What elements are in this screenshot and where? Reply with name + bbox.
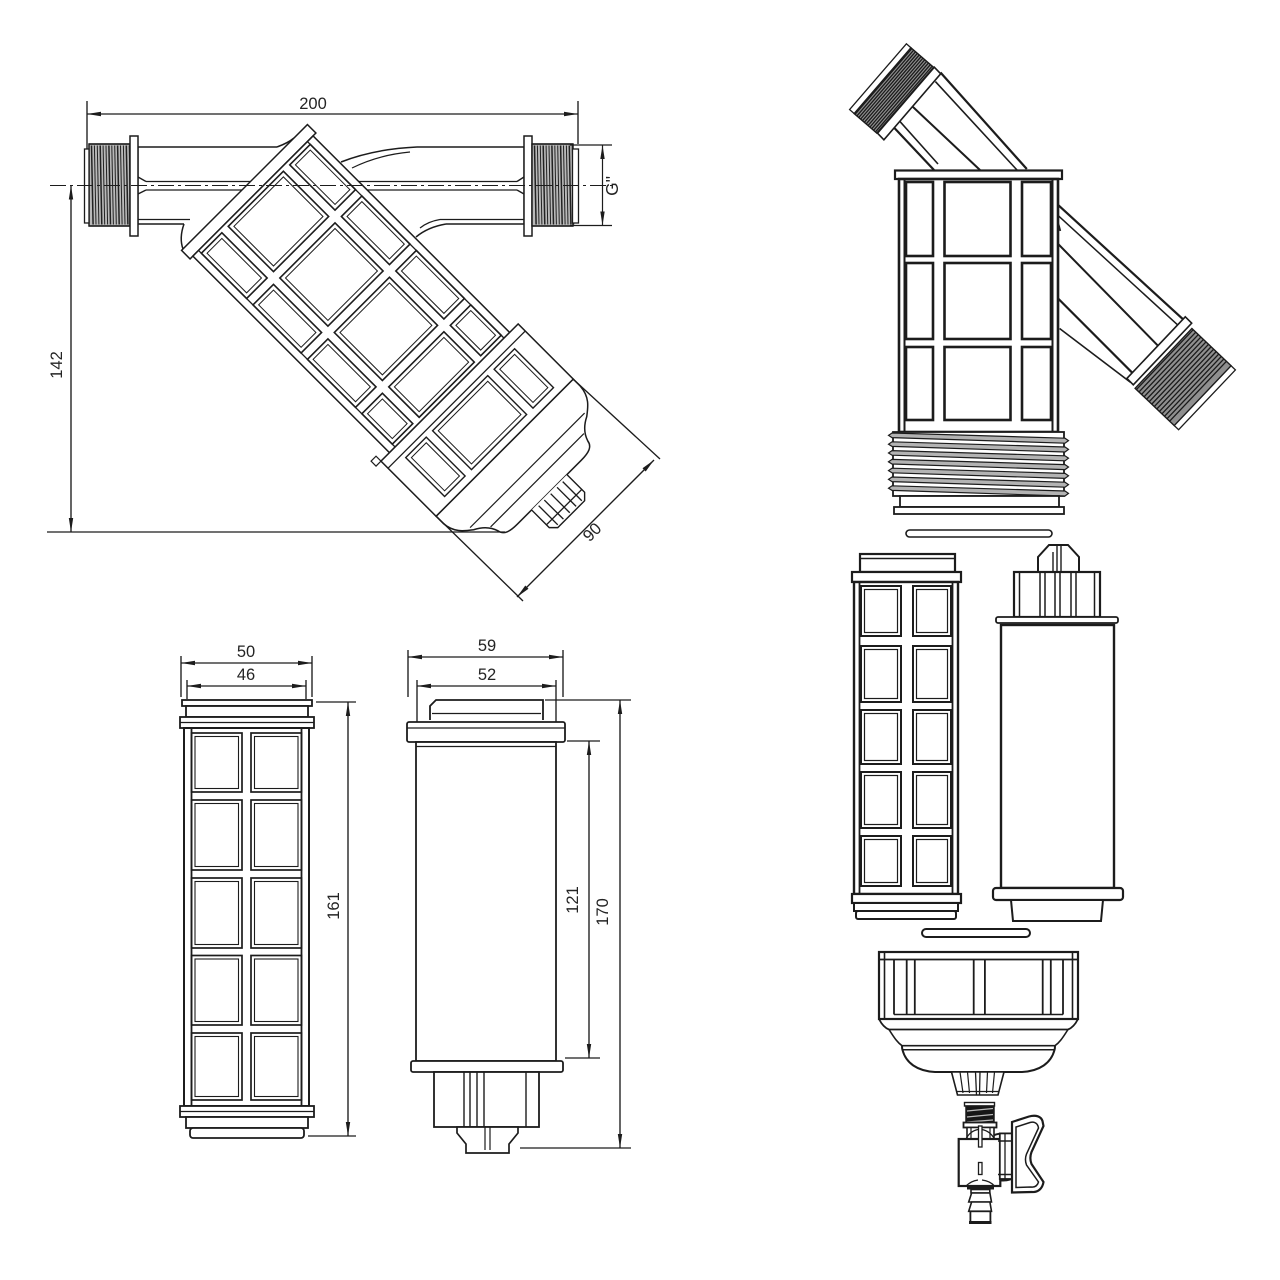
- svg-text:59: 59: [478, 637, 496, 655]
- svg-text:46: 46: [237, 666, 255, 684]
- svg-text:161: 161: [325, 892, 343, 920]
- svg-text:121: 121: [564, 886, 582, 914]
- svg-text:200: 200: [299, 95, 327, 113]
- svg-text:52: 52: [478, 666, 496, 684]
- svg-text:142: 142: [48, 351, 66, 379]
- svg-text:G": G": [602, 176, 622, 196]
- svg-text:50: 50: [237, 643, 255, 661]
- svg-text:170: 170: [594, 898, 612, 926]
